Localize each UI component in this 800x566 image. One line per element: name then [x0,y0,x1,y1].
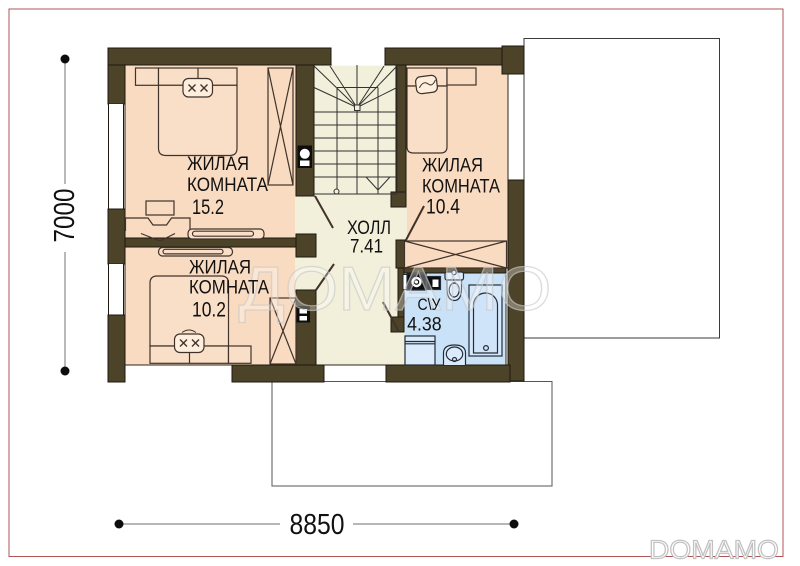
svg-text:С\У: С\У [418,295,441,314]
svg-text:15.2: 15.2 [192,195,224,219]
svg-text:DOMAMO: DOMAMO [649,535,779,565]
svg-text:7000: 7000 [49,189,81,243]
svg-text:8850: 8850 [290,509,345,541]
svg-text:ЖИЛАЯ: ЖИЛАЯ [422,156,483,177]
svg-text:ЖИЛАЯ: ЖИЛАЯ [189,258,251,279]
svg-text:10.2: 10.2 [192,298,226,322]
svg-text:4.38: 4.38 [407,315,442,336]
svg-text:КОМНАТА: КОМНАТА [189,278,269,299]
svg-text:КОМНАТА: КОМНАТА [187,175,268,196]
svg-text:10.4: 10.4 [426,195,460,219]
svg-text:7.41: 7.41 [350,237,383,258]
svg-text:ЖИЛАЯ: ЖИЛАЯ [187,154,249,175]
svg-text:ДОМАМО: ДОМАМО [239,255,552,324]
